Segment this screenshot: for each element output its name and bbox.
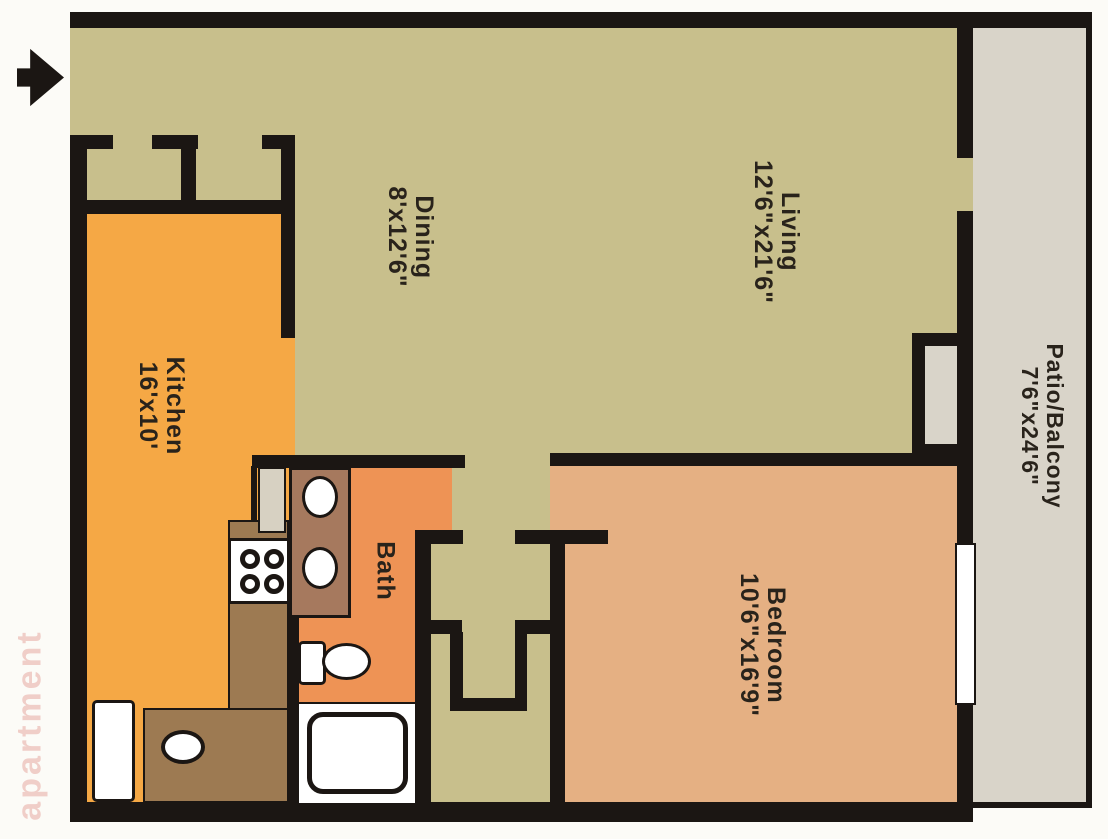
storage-closet-wall-top [912,333,973,346]
bathtub [307,712,408,794]
bath-door-jamb [415,530,463,544]
dining-name: Dining [410,186,437,287]
kitchen-sink [161,730,205,764]
wall-top [70,12,1092,28]
patio-label: Patio/Balcony 7'6"x24'6" [1017,343,1067,508]
patio-name: Patio/Balcony [1042,343,1067,508]
bedroom-label: Bedroom 10'6"x16'9" [735,573,789,717]
wall-patio-middle [957,211,973,543]
stove [228,538,290,604]
bedroom-door-jamb [515,530,608,544]
patio-dims: 7'6"x24'6" [1017,343,1042,508]
wall-patio-upper [957,28,973,158]
entry-arrow-icon [17,45,64,110]
entry-closet-divider [181,149,196,207]
living-name: Living [776,160,803,304]
stove-burner-icon [264,574,284,594]
floor-plan-page: { "plan": { "type": "apartment-floor-pla… [0,0,1108,839]
stove-burner-icon [240,574,260,594]
kitchen-dims: 16'x10' [134,357,161,456]
vanity-sink-1 [302,476,338,518]
dining-dims: 8'x12'6" [383,186,410,287]
stove-burner-icon [240,549,260,569]
wall-bedroom-left [550,544,565,804]
kitchen-name: Kitchen [161,357,188,456]
dining-label: Dining 8'x12'6" [383,186,437,287]
wall-living-bedroom-divider [550,453,973,466]
watermark-text: apartment [11,629,50,820]
vanity-sink-2 [302,547,338,589]
patio-rail-bottom [973,802,1092,808]
bath-door-opening [415,467,452,530]
pantry-cabinet [92,700,135,802]
entry-closet-stub-left [70,135,113,149]
stove-burner-icon [264,549,284,569]
living-dims: 12'6"x21'6" [749,160,776,304]
storage-closet-wall-bottom [912,444,973,457]
wall-bath-right [415,544,431,804]
linen-closet-wall-left [450,632,463,708]
bedroom-dims: 10'6"x16'9" [735,573,762,717]
refrigerator [258,467,286,533]
storage-closet-wall-left [912,333,925,457]
bedroom-window [955,543,976,705]
bath-name: Bath [372,541,399,601]
entry-closet-stub-middle [152,135,198,149]
bath-label: Bath [372,541,399,601]
wall-left [70,135,87,822]
toilet-bowl [322,643,371,680]
bedroom-name: Bedroom [762,573,789,717]
wall-bottom [70,802,973,822]
patio-rail-right [1086,20,1092,808]
linen-closet-wall-right [515,620,527,711]
wall-patio-lower [957,705,973,805]
wall-kitchen-dining-divider [281,135,295,338]
living-label: Living 12'6"x21'6" [749,160,803,304]
wall-kitchen-top [70,200,295,214]
kitchen-label: Kitchen 16'x10' [134,357,188,456]
